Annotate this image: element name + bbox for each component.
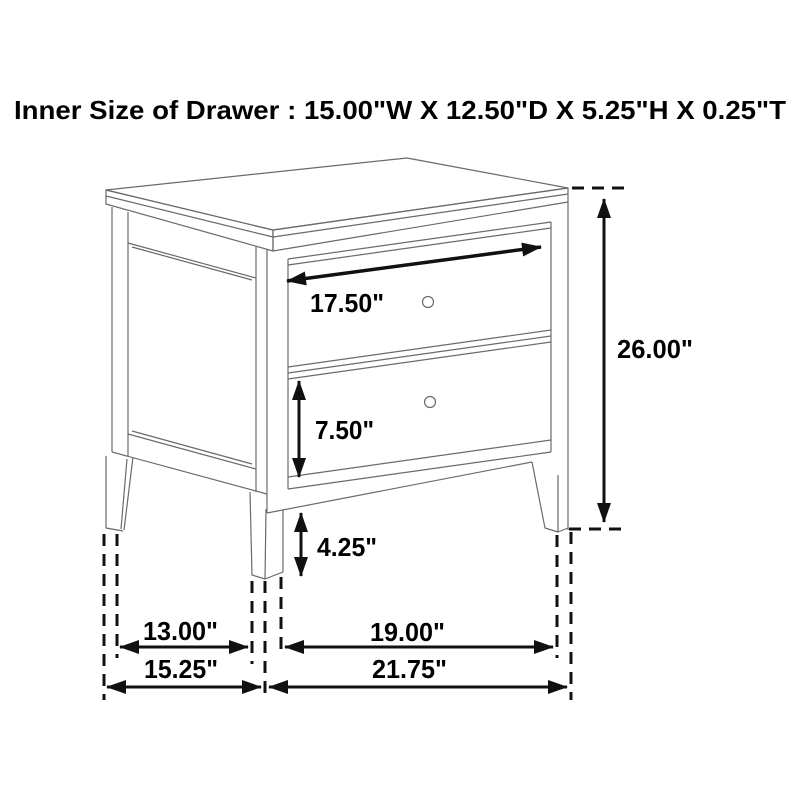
top-drawer-knob <box>423 297 434 308</box>
nightstand-dimension-diagram: Inner Size of Drawer : 15.00"W X 12.50"D… <box>0 0 800 800</box>
side-leg-spacing-dim-label: 13.00" <box>143 616 218 646</box>
drawer-divider-rail <box>288 336 551 373</box>
nightstand-line-art <box>106 158 568 579</box>
tabletop-right-edge-band <box>273 188 568 251</box>
bottom-drawer-height-dim-label: 7.50" <box>315 415 374 445</box>
dimension-diagram-page: Inner Size of Drawer : 15.00"W X 12.50"D… <box>0 0 800 800</box>
overall-depth-dim-label: 15.25" <box>144 654 218 684</box>
front-right-leg <box>532 462 568 532</box>
floor-clearance-dim-label: 4.25" <box>317 532 377 562</box>
bottom-drawer-front <box>288 342 551 477</box>
side-panel <box>112 207 267 494</box>
drawer-width-dim-label: 17.50" <box>310 288 384 318</box>
dimension-label-texts: 17.50" 26.00" 7.50" 4.25" 13.00" 19.00" … <box>143 288 693 684</box>
tabletop-left-edge-band <box>106 190 273 251</box>
tabletop-top-face <box>106 158 568 230</box>
bottom-drawer-knob <box>425 397 436 408</box>
overall-height-dim-label: 26.00" <box>617 334 693 364</box>
page-title: Inner Size of Drawer : 15.00"W X 12.50"D… <box>14 95 786 125</box>
drawer-width-dim-arrow <box>287 247 541 281</box>
rear-left-leg <box>106 456 133 531</box>
overall-width-dim-label: 21.75" <box>372 654 447 684</box>
front-frame <box>267 202 568 530</box>
front-leg-spacing-dim-label: 19.00" <box>370 617 445 647</box>
